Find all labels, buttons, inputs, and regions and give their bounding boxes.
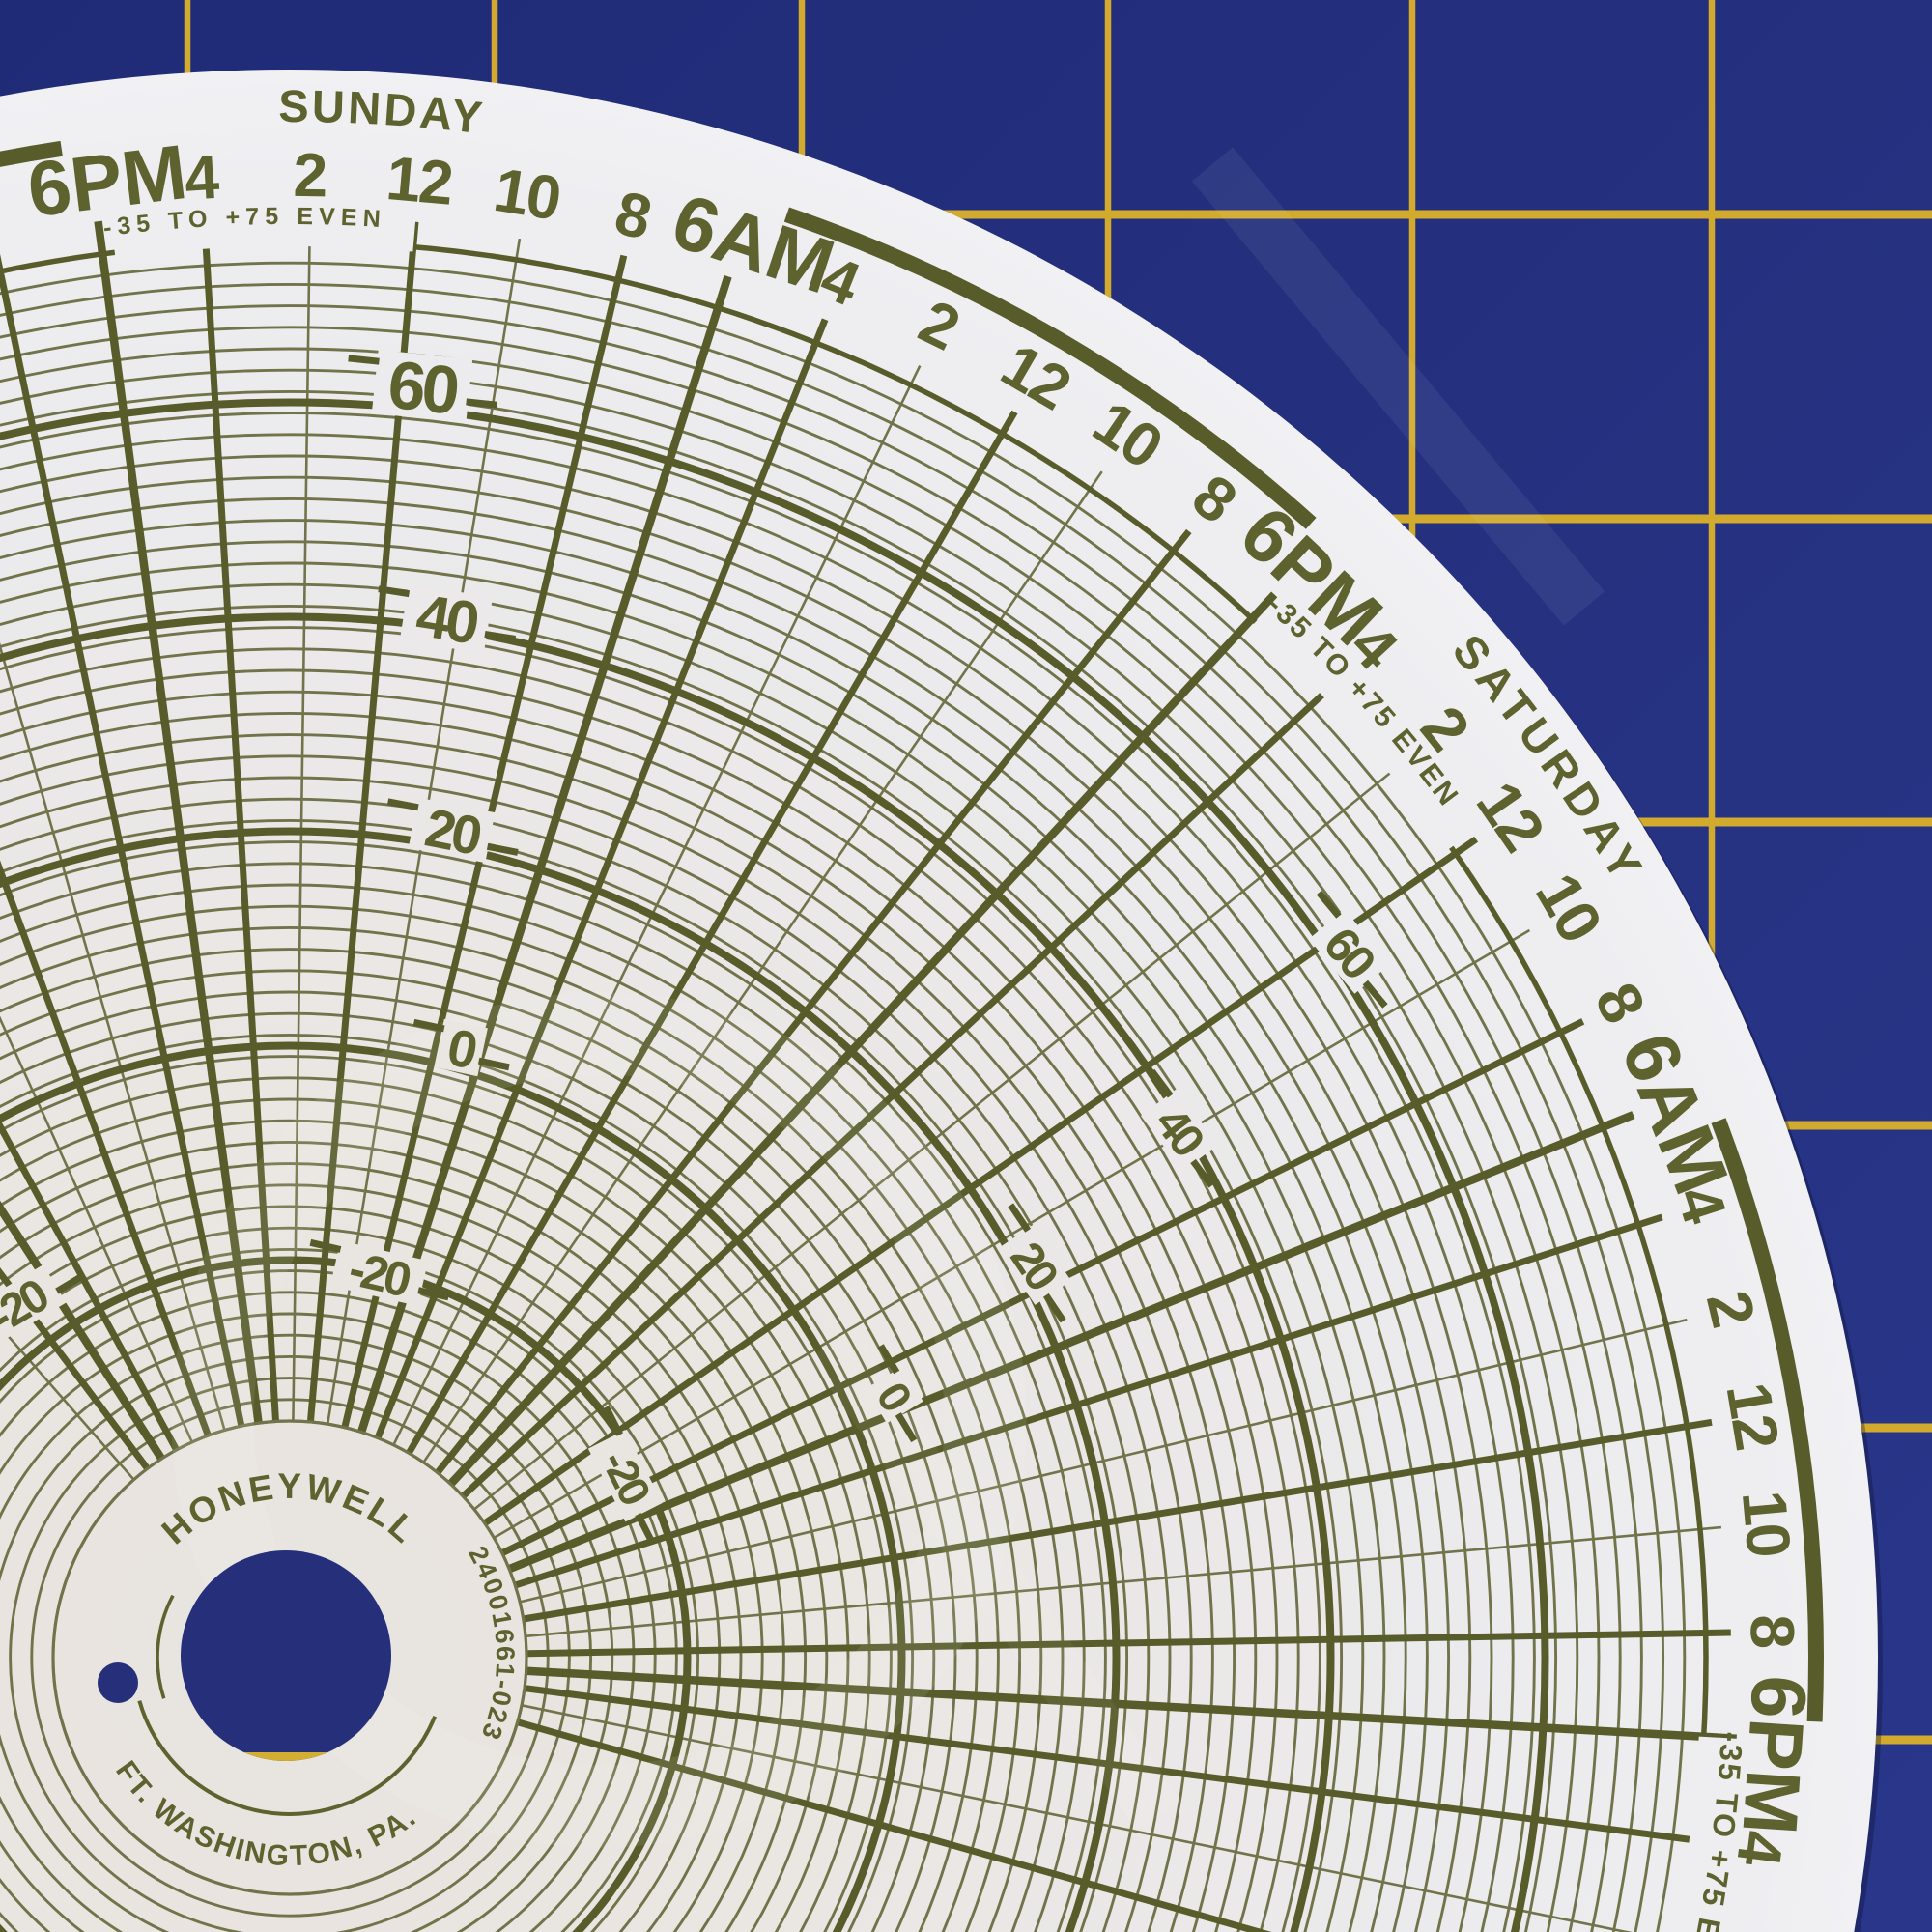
- svg-text:10: 10: [1729, 1488, 1804, 1558]
- svg-text:8: 8: [1737, 1614, 1807, 1650]
- svg-text:60: 60: [384, 347, 462, 429]
- svg-text:40: 40: [412, 582, 482, 658]
- svg-text:10: 10: [490, 155, 565, 234]
- svg-text:2: 2: [293, 140, 328, 210]
- svg-text:12: 12: [384, 143, 455, 218]
- svg-text:4: 4: [183, 142, 221, 213]
- svg-text:12: 12: [1713, 1378, 1792, 1453]
